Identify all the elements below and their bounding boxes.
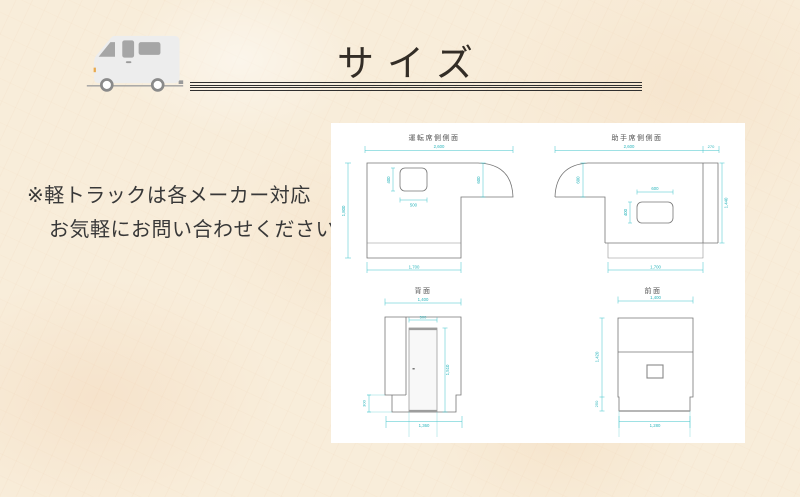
rule-line	[190, 90, 642, 91]
dim-label-window-width: 600	[651, 186, 659, 191]
drawing-rear-view: 背面 1,400 500 1,510 300 1,360	[362, 286, 463, 437]
dim-label-width: 1,400	[418, 297, 429, 302]
dim-label-door-width: 500	[420, 315, 427, 320]
drawing-passenger-side: 助手席側側面 2,600 270 600 400 600 1,440 1,700	[555, 133, 729, 273]
dim-label-step-height: 300	[362, 399, 367, 406]
drawing-driver-side: 運転席側側面 2,600 1,800 400 500 600 1,700	[341, 133, 513, 273]
side-window	[400, 168, 427, 191]
rule-line	[190, 82, 642, 83]
rear-wheel-icon	[152, 79, 163, 90]
dim-label-bottom-width: 1,360	[419, 423, 430, 428]
drawing-front-view: 前面 1,400 1,420 250 1,280	[594, 286, 693, 437]
dimension-line	[628, 202, 632, 223]
skirt-line	[608, 243, 703, 258]
note-text: ※軽トラックは各メーカー対応 お気軽にお問い合わせください	[27, 186, 337, 240]
dim-label-bottom-width: 1,280	[650, 423, 661, 428]
title-underline	[190, 82, 642, 91]
dimension-line	[600, 397, 605, 411]
dim-label-window-height: 400	[386, 176, 391, 184]
dim-label-total-length: 2,600	[624, 144, 635, 149]
truck-icon	[85, 34, 185, 94]
dim-label-height: 1,420	[595, 351, 600, 362]
front-lamp-icon	[94, 68, 96, 73]
extension-line	[367, 395, 392, 412]
body-outline	[555, 163, 718, 243]
door-handle-icon	[126, 61, 131, 63]
drawing-title: 背面	[415, 286, 432, 295]
dim-label-right-height: 1,440	[724, 197, 729, 208]
dim-label-door-height: 1,510	[445, 364, 450, 375]
hitch-icon	[179, 80, 184, 84]
drawing-title: 助手席側側面	[612, 133, 663, 142]
dim-label-total-length: 2,600	[434, 144, 445, 149]
truck-body-icon	[94, 36, 179, 83]
page-title: サイズ	[200, 33, 610, 87]
dim-label-overcab-height: 600	[476, 176, 481, 184]
door-window-icon	[122, 40, 134, 57]
page-background: サイズ ※軽トラックは各メーカー対応 お気軽にお問い合わせください 運転席側側面…	[0, 0, 800, 497]
front-wheel-icon	[101, 79, 112, 90]
dim-label-overcab-height: 600	[576, 176, 581, 184]
dim-label-bottom-length: 1,700	[650, 265, 661, 270]
rule-line	[190, 85, 642, 86]
dim-label-bottom-length: 1,700	[409, 265, 420, 270]
side-window-icon	[139, 42, 161, 55]
technical-drawings: 運転席側側面 2,600 1,800 400 500 600 1,700 助手席…	[331, 123, 745, 443]
dimension-line	[600, 318, 605, 397]
dim-label-step-height: 250	[594, 400, 599, 407]
dim-label-width: 1,400	[650, 295, 661, 300]
front-hatch	[647, 365, 663, 378]
door-handle	[413, 368, 415, 370]
dimension-line	[367, 395, 371, 412]
dimension-line	[581, 163, 586, 197]
drawing-title: 前面	[645, 286, 662, 295]
rear-door	[409, 328, 437, 412]
rule-line	[190, 87, 642, 88]
dim-label-height: 1,800	[341, 205, 346, 216]
diagram-panel: 運転席側側面 2,600 1,800 400 500 600 1,700 助手席…	[331, 123, 745, 443]
dim-label-top-overhang: 270	[708, 144, 715, 149]
note-line-1: ※軽トラックは各メーカー対応	[27, 186, 337, 206]
dimension-line	[481, 163, 486, 197]
side-window	[637, 202, 673, 223]
drawing-title: 運転席側側面	[409, 133, 460, 142]
dimension-line	[555, 146, 719, 153]
dimension-line	[391, 168, 395, 191]
dim-label-window-height: 400	[623, 208, 628, 216]
note-line-2: お気軽にお問い合わせください	[27, 220, 337, 240]
dim-label-window-width: 500	[410, 203, 418, 208]
